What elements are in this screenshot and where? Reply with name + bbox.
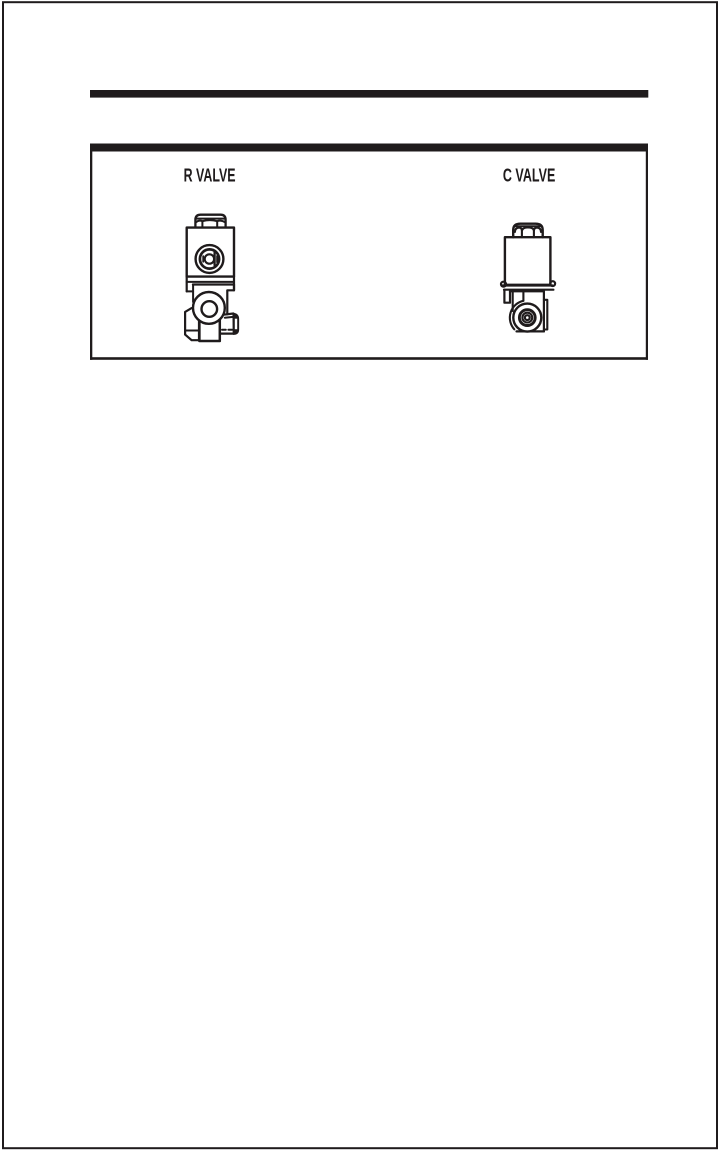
svg-text:C VALVE: C VALVE: [503, 165, 555, 185]
svg-text:R VALVE: R VALVE: [184, 165, 236, 185]
